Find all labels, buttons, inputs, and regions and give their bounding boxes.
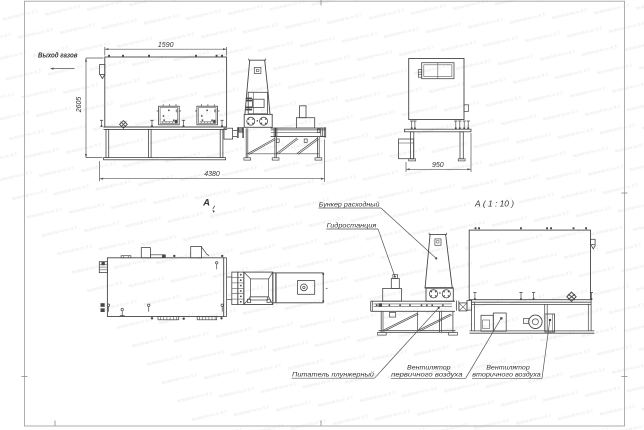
svg-text:1590: 1590 (158, 42, 174, 49)
svg-text:А ( 1 : 10 ): А ( 1 : 10 ) (474, 200, 514, 209)
svg-text:Питатель плунжерный: Питатель плунжерный (292, 371, 374, 379)
svg-text:950: 950 (432, 162, 444, 169)
svg-text:Выход газов: Выход газов (38, 51, 78, 60)
svg-text:2605: 2605 (76, 97, 83, 114)
svg-text:первичного воздуха: первичного воздуха (391, 371, 463, 379)
svg-text:4380: 4380 (204, 171, 220, 178)
svg-text:Вентилятор: Вентилятор (486, 364, 530, 371)
svg-text:вторичного воздуха: вторичного воздуха (472, 371, 541, 379)
svg-text:Гидростанция: Гидростанция (327, 221, 377, 229)
svg-text:Бункер расходный: Бункер расходный (319, 200, 380, 208)
svg-text:Вентилятор: Вентилятор (407, 364, 451, 371)
svg-text:А: А (202, 198, 210, 209)
